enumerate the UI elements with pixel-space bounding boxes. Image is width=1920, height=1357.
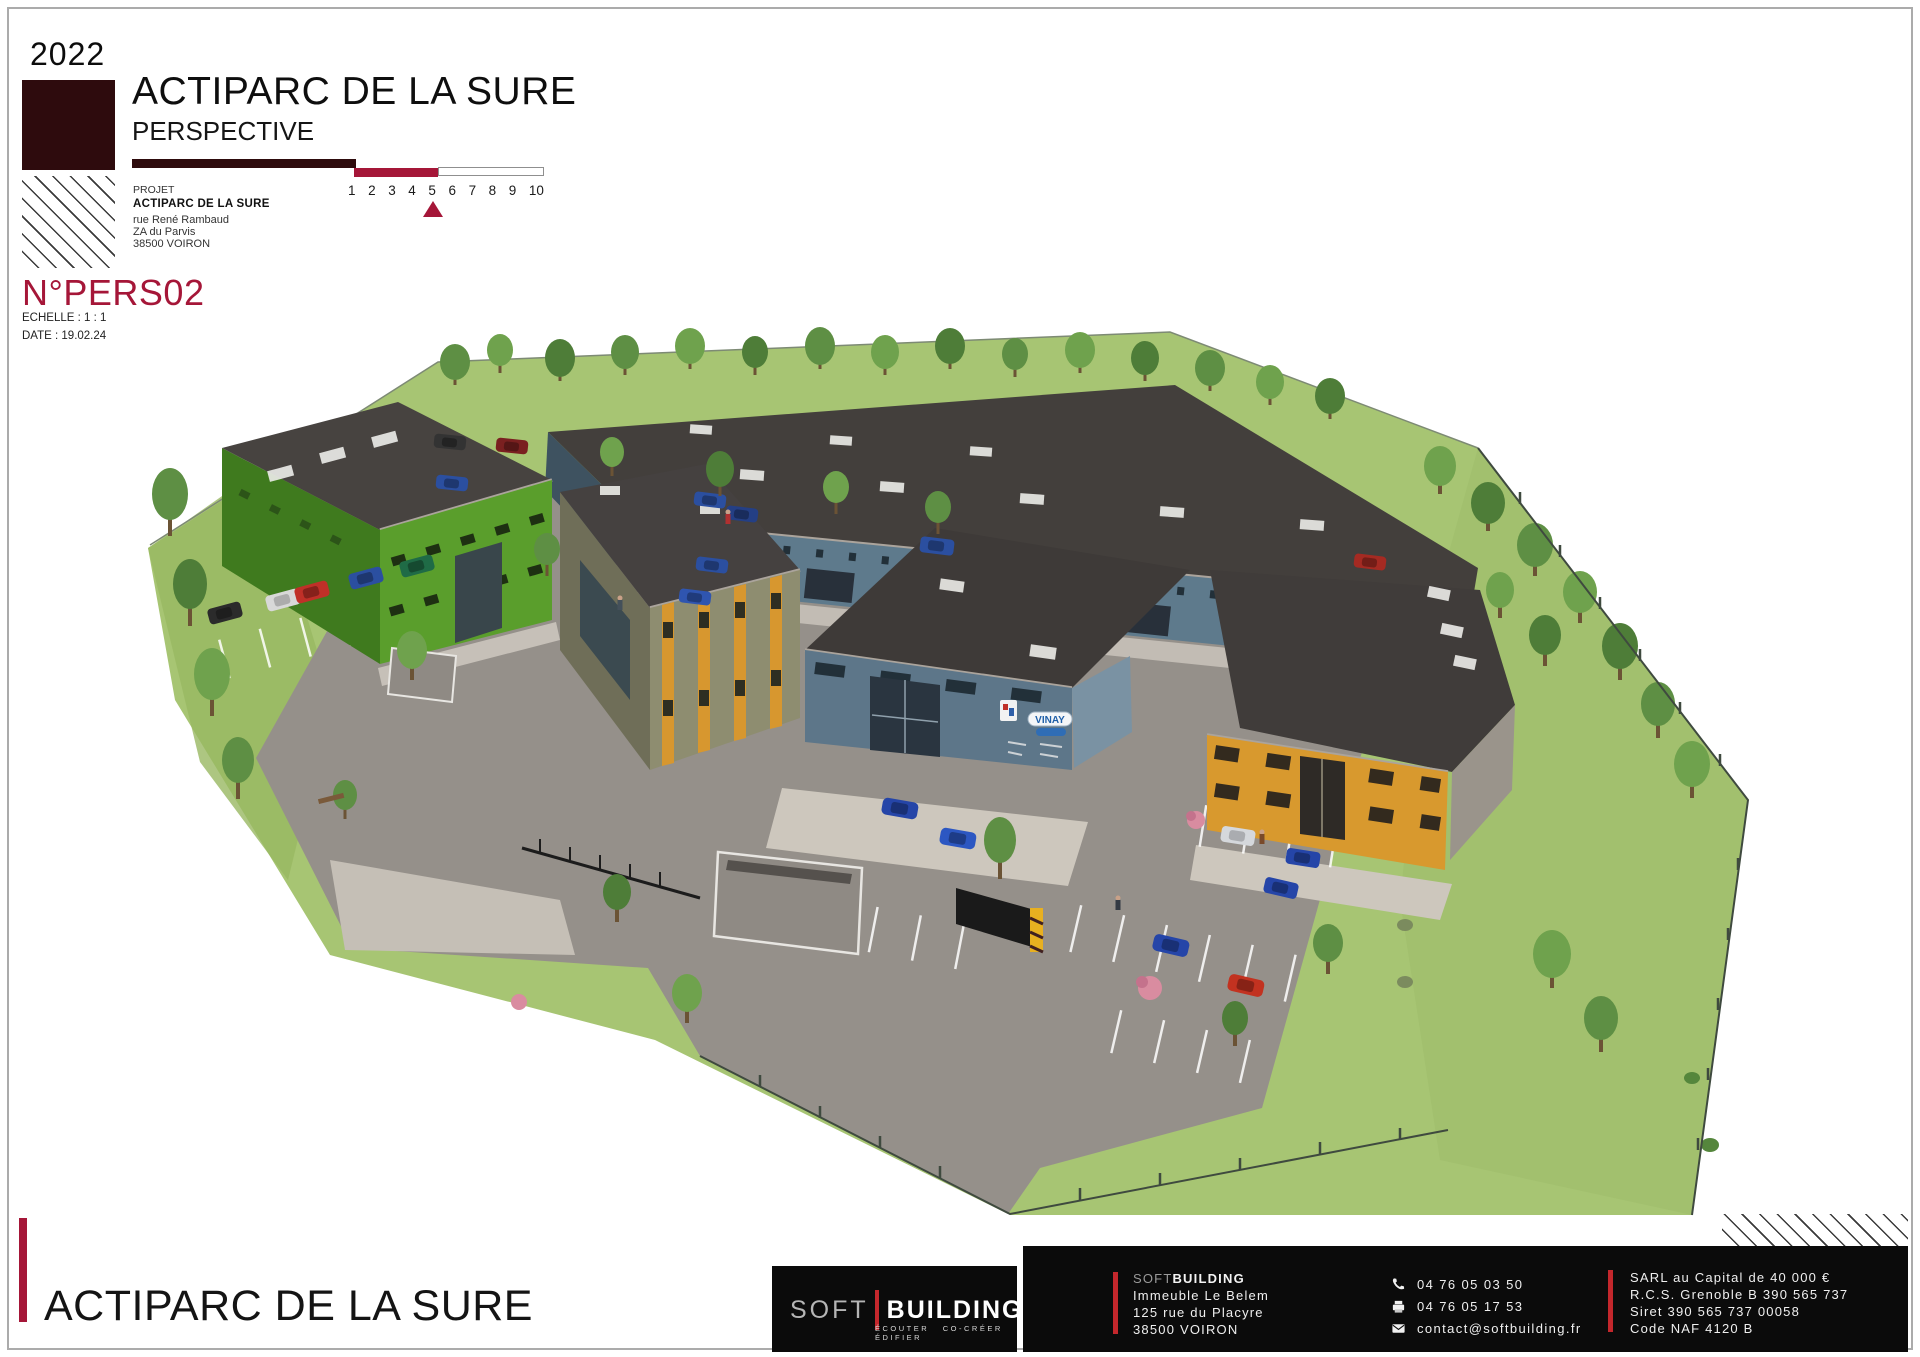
logo-tagline: ÉCOUTER CO-CRÉER ÉDIFIER xyxy=(875,1324,1017,1342)
email-address: contact@softbuilding.fr xyxy=(1417,1321,1582,1336)
fax-number: 04 76 05 17 53 xyxy=(1417,1299,1523,1314)
logo-soft-text: SOFT xyxy=(790,1296,869,1325)
logo-building-text: BUILDING xyxy=(887,1296,1024,1325)
legal-line4: Code NAF 4120 B xyxy=(1630,1320,1848,1337)
phone-row: 04 76 05 03 50 xyxy=(1391,1274,1523,1294)
phone-number: 04 76 05 03 50 xyxy=(1417,1277,1523,1292)
legal-line2: R.C.S. Grenoble B 390 565 737 xyxy=(1630,1286,1848,1303)
softbuilding-logo-box: SOFT BUILDING ÉCOUTER CO-CRÉER ÉDIFIER xyxy=(772,1266,1017,1352)
envelope-icon xyxy=(1391,1321,1407,1336)
site-perspective-render: VINAY xyxy=(0,0,1920,1357)
footer-divider-bar-1 xyxy=(1113,1272,1118,1334)
drawing-sheet: 2022 ACTIPARC DE LA SURE PERSPECTIVE 1 2… xyxy=(0,0,1920,1357)
company-address-block: SOFTBUILDING Immeuble Le Belem 125 rue d… xyxy=(1133,1270,1269,1338)
legal-line1: SARL au Capital de 40 000 € xyxy=(1630,1269,1848,1286)
entrance-sign xyxy=(1000,700,1017,721)
company-address2: 125 rue du Placyre xyxy=(1133,1304,1269,1321)
footer-divider-bar-2 xyxy=(1608,1270,1613,1332)
company-address3: 38500 VOIRON xyxy=(1133,1321,1269,1338)
legal-line3: Siret 390 565 737 00058 xyxy=(1630,1303,1848,1320)
vinay-sign-text: VINAY xyxy=(1035,715,1065,726)
email-row: contact@softbuilding.fr xyxy=(1391,1318,1582,1338)
hatch-pattern-bottom-right xyxy=(1722,1214,1908,1246)
fax-icon xyxy=(1391,1299,1407,1314)
footer-site-title: ACTIPARC DE LA SURE xyxy=(44,1282,533,1331)
fax-row: 04 76 05 17 53 xyxy=(1391,1296,1523,1316)
footer-info-box: SOFTBUILDING Immeuble Le Belem 125 rue d… xyxy=(1023,1246,1908,1352)
company-address1: Immeuble Le Belem xyxy=(1133,1287,1269,1304)
building-orange xyxy=(1207,570,1515,870)
footer-accent-bar xyxy=(19,1218,27,1322)
legal-block: SARL au Capital de 40 000 € R.C.S. Greno… xyxy=(1630,1269,1848,1337)
company-building: BUILDING xyxy=(1172,1271,1244,1286)
phone-icon xyxy=(1391,1277,1407,1292)
company-soft: SOFT xyxy=(1133,1271,1172,1286)
